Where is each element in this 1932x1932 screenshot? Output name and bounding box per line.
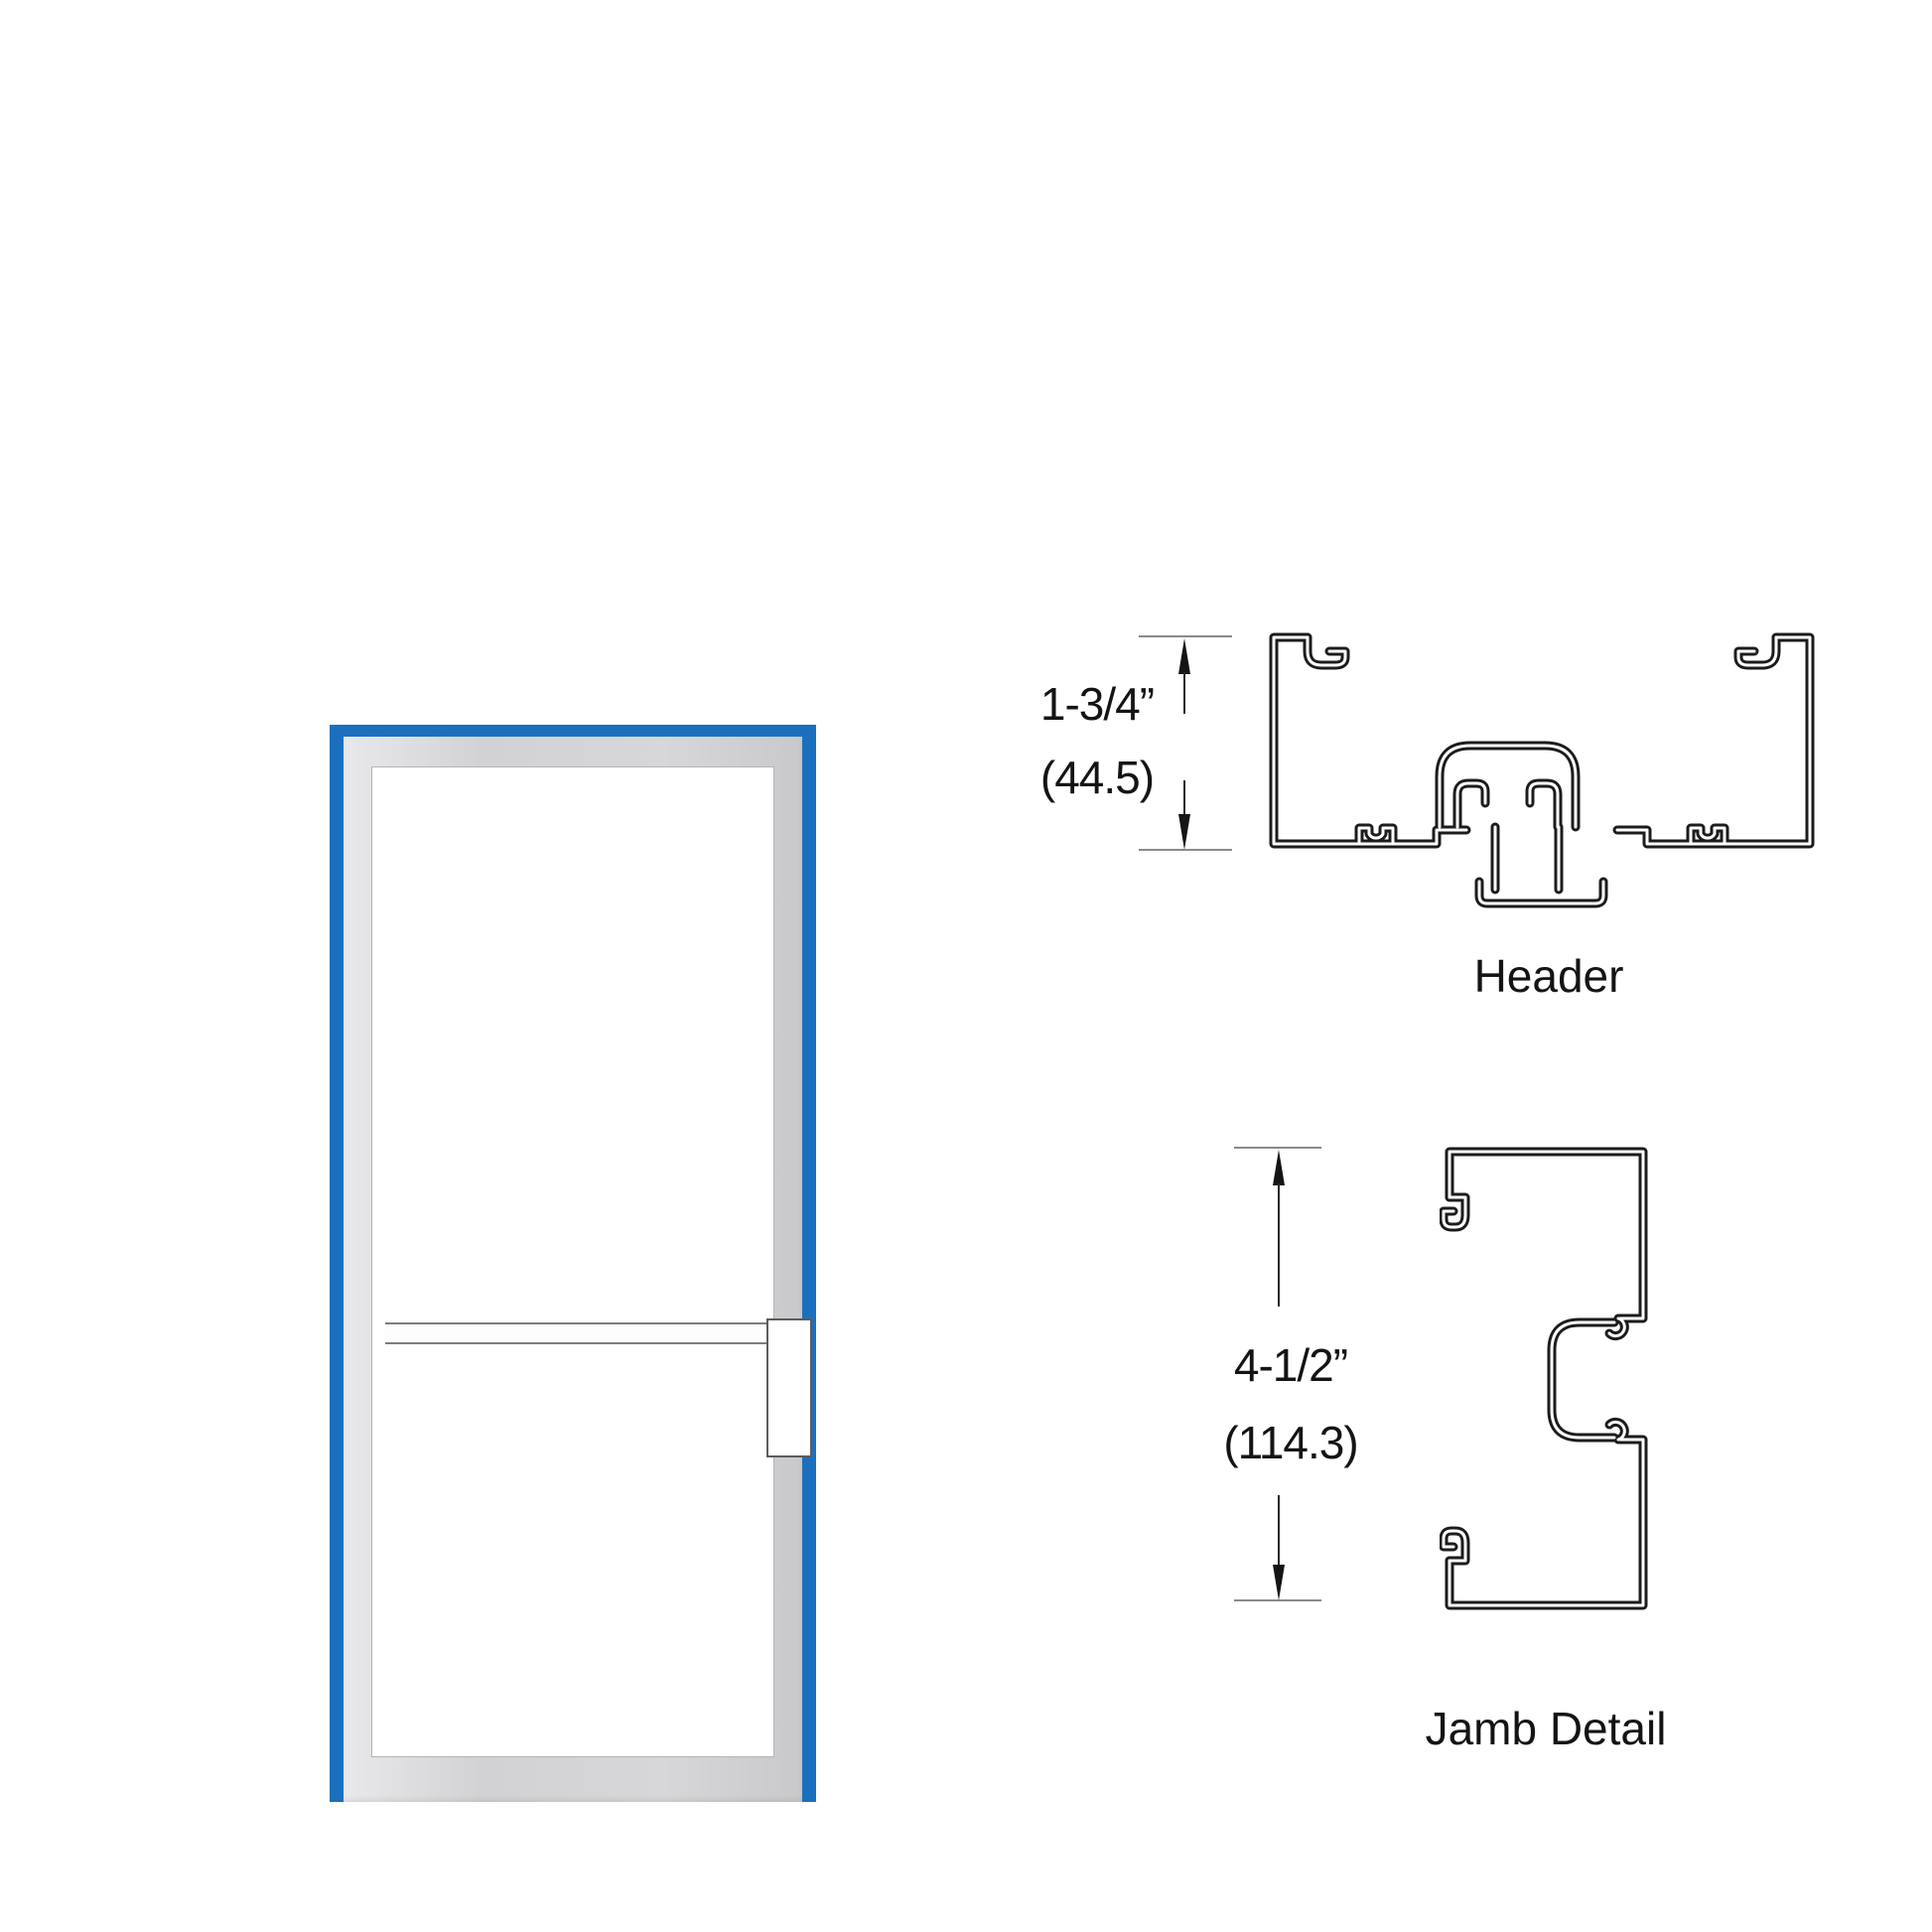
header-dimension-imperial: 1-3/4”	[1008, 679, 1186, 730]
jamb-dim-arrow-down	[1273, 1565, 1285, 1600]
jamb-dim-shaft-lower	[1278, 1495, 1280, 1567]
jamb-dim-shaft-upper	[1278, 1183, 1280, 1307]
jamb-dimension-metric: (114.3)	[1201, 1418, 1380, 1468]
jamb-dim-bottom-tick	[1234, 1599, 1321, 1601]
jamb-profile-drawing	[1440, 1144, 1653, 1615]
door-glass	[371, 766, 774, 1757]
header-dim-bottom-tick	[1139, 849, 1232, 851]
push-bar	[385, 1322, 766, 1344]
door-top-blue-edge	[330, 725, 816, 737]
header-profile-drawing	[1266, 625, 1827, 928]
door-spec-sheet: 1-3/4” (44.5)	[0, 0, 1932, 1932]
exit-device-handle	[766, 1318, 812, 1457]
door-elevation	[330, 725, 816, 1802]
jamb-label: Jamb Detail	[1417, 1702, 1675, 1755]
jamb-dim-arrow-up	[1273, 1150, 1285, 1185]
header-label: Header	[1449, 949, 1648, 1003]
door-frame	[344, 737, 802, 1802]
jamb-dim-top-tick	[1234, 1147, 1321, 1149]
header-dim-arrow-down	[1178, 814, 1190, 850]
header-dimension-metric: (44.5)	[1008, 753, 1186, 803]
header-dim-top-tick	[1139, 635, 1232, 637]
door-right-blue-edge	[802, 725, 816, 1802]
door-left-blue-edge	[330, 725, 344, 1802]
header-dim-arrow-up	[1178, 638, 1190, 674]
jamb-dimension-imperial: 4-1/2”	[1201, 1340, 1380, 1391]
header-dim-shaft-lower	[1183, 780, 1185, 816]
